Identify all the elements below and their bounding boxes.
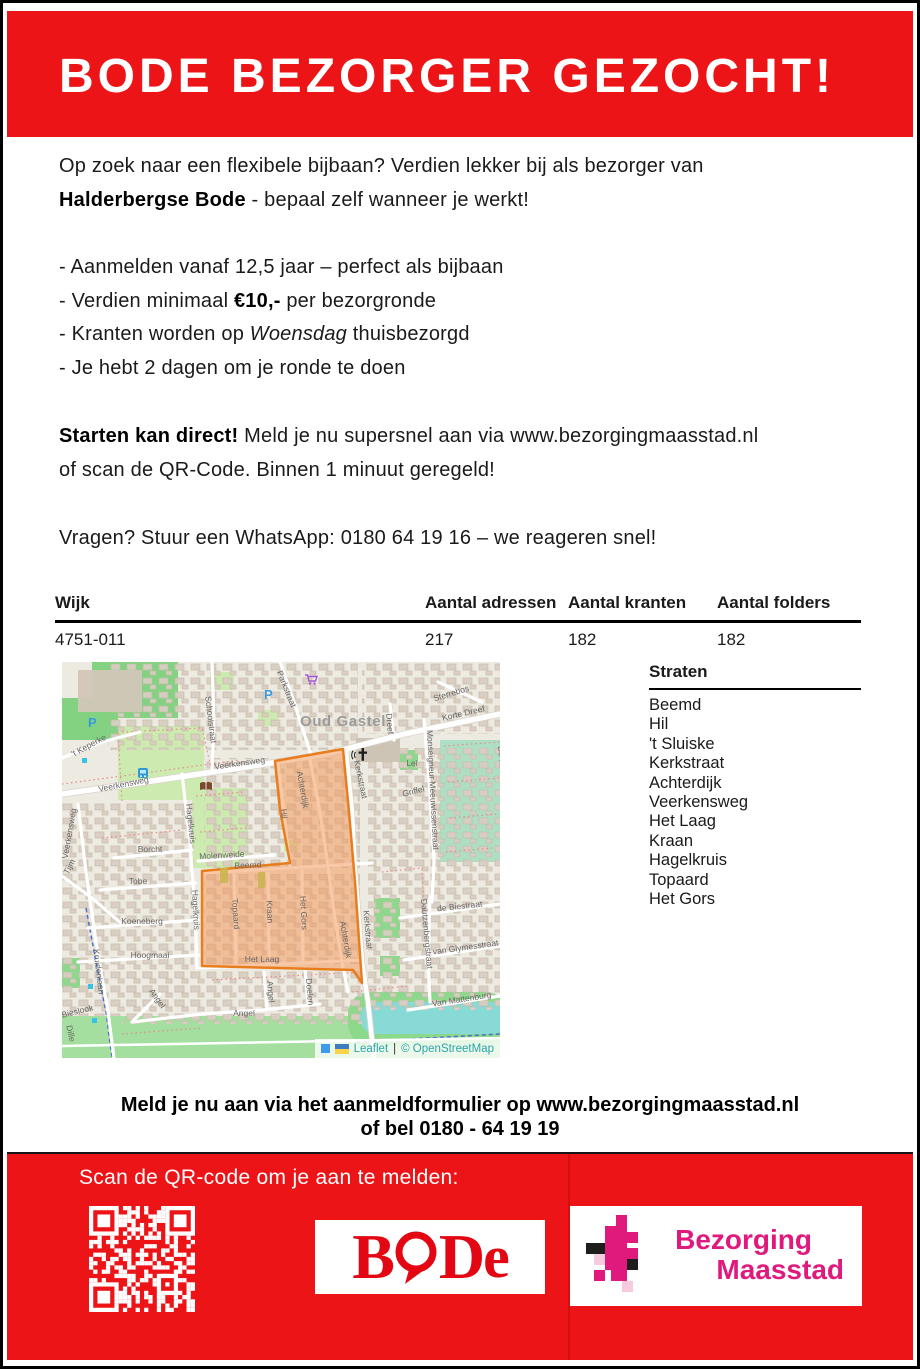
bode-logo: B D e: [315, 1220, 545, 1294]
map-attribution: Leaflet | © OpenStreetMap: [315, 1039, 500, 1058]
street-label: Angel: [265, 980, 277, 1003]
street-list-item: Hagelkruis: [649, 851, 861, 870]
straten-title: Straten: [649, 662, 861, 690]
cell-wijk: 4751-011: [55, 630, 425, 650]
cell-adressen: 217: [425, 630, 568, 650]
bode-wordmark: B D e: [352, 1225, 508, 1289]
bullet-time: - Je hebt 2 dagen om je ronde te doen: [59, 352, 504, 386]
street-label: Het Laag: [245, 954, 280, 964]
col-folders: Aantal folders: [717, 593, 861, 613]
leaflet-map[interactable]: P: [62, 662, 500, 1058]
cell-folders: 182: [717, 630, 861, 650]
parking-icon: [88, 715, 97, 730]
straten-list: BeemdHil't SluiskeKerkstraatAchterdijkVe…: [649, 696, 861, 909]
school-building: [78, 670, 142, 712]
parking-icon: [264, 687, 273, 702]
place-label: Oud Gastel: [300, 713, 386, 730]
cta-line1: Starten kan direct! Meld je nu supersnel…: [59, 419, 758, 453]
street-list-item: Hil: [649, 715, 861, 734]
table-header-row: Wijk Aantal adressen Aantal kranten Aant…: [55, 593, 861, 623]
wijk-table: Wijk Aantal adressen Aantal kranten Aant…: [55, 593, 861, 650]
street-list-item: Het Laag: [649, 812, 861, 831]
speech-bubble-o-icon: [393, 1228, 439, 1286]
openstreetmap-link[interactable]: © OpenStreetMap: [401, 1043, 494, 1055]
col-adressen: Aantal adressen: [425, 593, 568, 613]
bottom-cta-line1: Meld je nu aan via het aanmeldformulier …: [3, 1094, 917, 1118]
maasstad-pixel-icon: [586, 1213, 666, 1299]
qr-code: [89, 1206, 195, 1312]
map-patch: [220, 868, 228, 883]
dot-blue-icon: [92, 1018, 97, 1023]
questions-line: Vragen? Stuur een WhatsApp: 0180 64 19 1…: [59, 521, 656, 555]
map-canvas[interactable]: P: [62, 662, 500, 1058]
street-label: Beemd: [234, 860, 262, 871]
ukraine-flag-icon: [335, 1044, 349, 1054]
street-list-item: Beemd: [649, 696, 861, 715]
flyer-page: BODE BEZORGER GEZOCHT! Op zoek naar een …: [0, 0, 920, 1369]
street-label: Koeneberg: [121, 916, 163, 926]
dot-blue-icon: [88, 984, 93, 989]
bullet-pay: - Verdien minimaal €10,- per bezorgronde: [59, 285, 504, 319]
street-label: Hoogmaai: [131, 950, 170, 960]
col-kranten: Aantal kranten: [568, 593, 717, 613]
maasstad-logo-line2: Maasstad: [716, 1254, 844, 1286]
cell-kranten: 182: [568, 630, 717, 650]
brand-name: Halderbergse Bode: [59, 189, 246, 211]
intro-paragraph: Op zoek naar een flexibele bijbaan? Verd…: [59, 149, 704, 217]
col-wijk: Wijk: [55, 593, 425, 613]
street-list-item: 't Sluiske: [649, 735, 861, 754]
table-row: 4751-011 217 182 182: [55, 623, 861, 650]
street-list-item: Kerkstraat: [649, 754, 861, 773]
street-label: Hil: [279, 808, 290, 819]
bullet-day: - Kranten worden op Woensdag thuisbezorg…: [59, 318, 504, 352]
maasstad-logo-line1: Bezorging: [675, 1224, 812, 1256]
cta-line2: of scan de QR-Code. Binnen 1 minuut gere…: [59, 453, 758, 487]
header-band: BODE BEZORGER GEZOCHT!: [7, 11, 913, 137]
leaflet-link[interactable]: Leaflet: [354, 1043, 389, 1055]
intro-line1: Op zoek naar een flexibele bijbaan? Verd…: [59, 149, 704, 183]
dot-blue-icon: [82, 758, 87, 763]
bottom-cta: Meld je nu aan via het aanmeldformulier …: [3, 1094, 917, 1141]
map-patch: [258, 872, 265, 888]
cta-paragraph: Starten kan direct! Meld je nu supersnel…: [59, 419, 758, 487]
street-list-item: Achterdijk: [649, 774, 861, 793]
attribution-separator: |: [393, 1043, 396, 1055]
bullet-age: - Aanmelden vanaf 12,5 jaar – perfect al…: [59, 251, 504, 285]
street-label: Kraan: [264, 900, 275, 923]
street-list-item: Kraan: [649, 832, 861, 851]
benefits-list: - Aanmelden vanaf 12,5 jaar – perfect al…: [59, 251, 504, 385]
street-label: Lei: [406, 758, 417, 768]
bezorging-maasstad-logo: Bezorging Maasstad: [570, 1206, 862, 1306]
street-label: Hagelkruis: [190, 890, 202, 931]
street-label: Angel: [233, 1008, 255, 1018]
street-list-item: Veerkensweg: [649, 793, 861, 812]
attribution-badge-icon: [321, 1044, 330, 1053]
street-list-item: Het Gors: [649, 890, 861, 909]
scan-label: Scan de QR-code om je aan te melden:: [79, 1166, 459, 1190]
footer-band: Scan de QR-code om je aan te melden: B D…: [7, 1152, 913, 1360]
straten-panel: Straten BeemdHil't SluiskeKerkstraatAcht…: [649, 662, 861, 909]
page-title: BODE BEZORGER GEZOCHT!: [7, 45, 835, 104]
intro-line2: Halderbergse Bode - bepaal zelf wanneer …: [59, 183, 704, 217]
book-icon: [200, 782, 212, 790]
street-label: Het Gors: [298, 896, 310, 930]
street-list-item: Topaard: [649, 871, 861, 890]
street-label: Borcht: [138, 844, 163, 854]
street-label: Tobe: [129, 876, 148, 886]
bottom-cta-line2: of bel 0180 - 64 19 19: [3, 1118, 917, 1142]
